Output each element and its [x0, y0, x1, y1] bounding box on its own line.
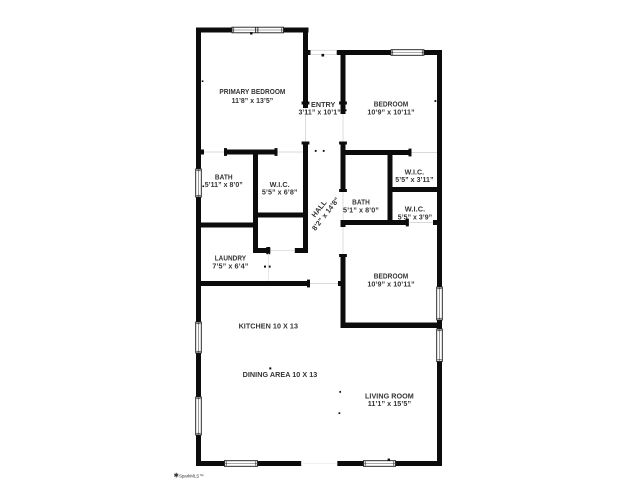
svg-text:3’11” x 10’1”: 3’11” x 10’1” — [298, 108, 341, 117]
svg-text:7’5” x 6’4”: 7’5” x 6’4” — [212, 261, 248, 270]
svg-text:10’9” x 10’11”: 10’9” x 10’11” — [367, 280, 415, 289]
svg-text:11’8” x 13’5”: 11’8” x 13’5” — [232, 96, 274, 105]
svg-text:10’9” x 10’11”: 10’9” x 10’11” — [367, 107, 415, 116]
svg-text:5’5” x 6’8”: 5’5” x 6’8” — [262, 187, 298, 196]
svg-text:5’1” x 8’0”: 5’1” x 8’0” — [343, 205, 379, 214]
svg-text:11’1” x 15’5”: 11’1” x 15’5” — [368, 399, 412, 408]
svg-text:5’5” x 3’9”: 5’5” x 3’9” — [398, 212, 433, 221]
svg-text:SparkMLS™: SparkMLS™ — [179, 474, 204, 479]
svg-text:5’5” x 3’11”: 5’5” x 3’11” — [395, 175, 434, 184]
svg-text:5’11” x 8’0”: 5’11” x 8’0” — [205, 180, 243, 189]
svg-text:PRIMARY BEDROOM: PRIMARY BEDROOM — [219, 87, 285, 96]
svg-text:KITCHEN 10 X 13: KITCHEN 10 X 13 — [239, 321, 298, 330]
svg-text:DINING AREA 10 X 13: DINING AREA 10 X 13 — [243, 370, 318, 379]
